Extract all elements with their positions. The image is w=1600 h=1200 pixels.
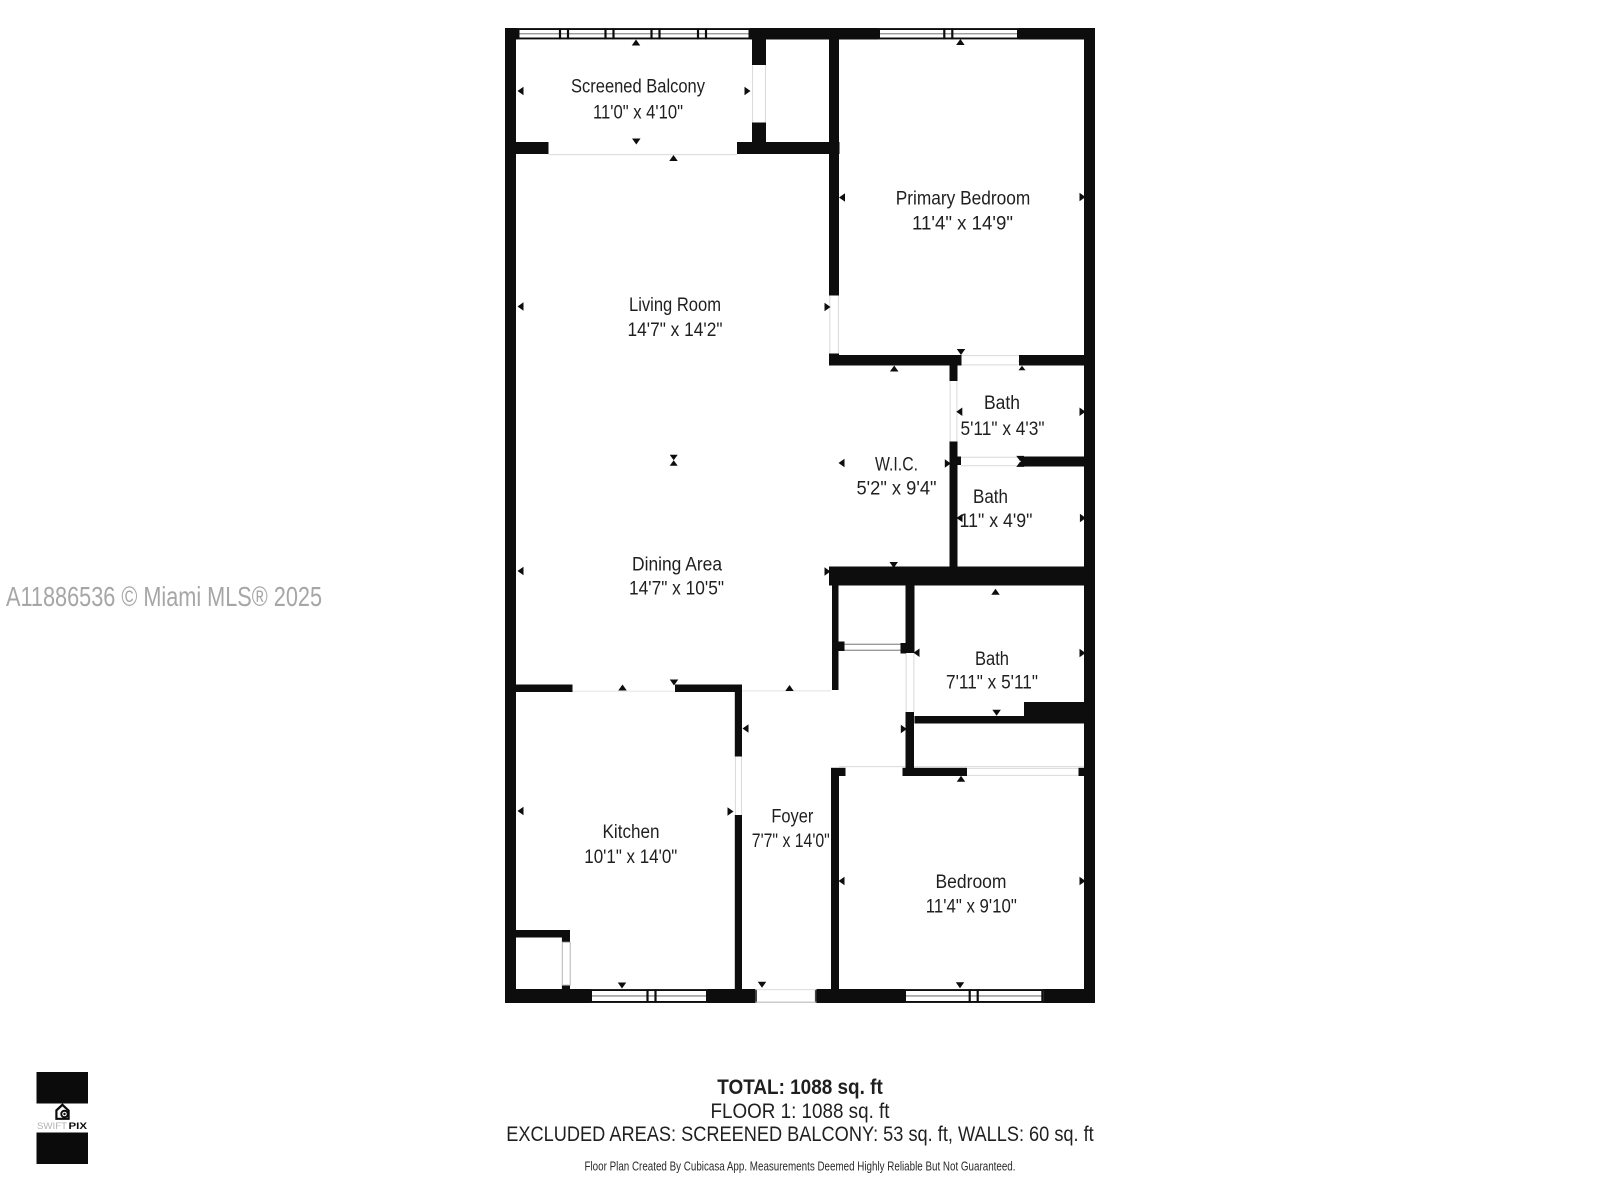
svg-text:W.I.C.: W.I.C. xyxy=(875,455,918,476)
svg-text:Kitchen: Kitchen xyxy=(603,822,660,843)
svg-text:Foyer: Foyer xyxy=(771,807,814,828)
svg-text:Dining Area: Dining Area xyxy=(632,555,722,576)
svg-text:PIX: PIX xyxy=(69,1121,88,1132)
svg-text:14'7" x 10'5": 14'7" x 10'5" xyxy=(629,579,724,600)
svg-text:5'2" x 9'4": 5'2" x 9'4" xyxy=(857,479,937,500)
svg-text:EXCLUDED AREAS: SCREENED BALCO: EXCLUDED AREAS: SCREENED BALCONY: 53 sq.… xyxy=(506,1123,1094,1146)
svg-text:Bath: Bath xyxy=(973,487,1008,508)
svg-text:Bath: Bath xyxy=(984,393,1020,414)
svg-text:11" x 4'9": 11" x 4'9" xyxy=(960,511,1033,532)
svg-text:Primary Bedroom: Primary Bedroom xyxy=(896,189,1031,210)
svg-text:11'0" x 4'10": 11'0" x 4'10" xyxy=(593,103,683,124)
svg-text:7'7" x 14'0": 7'7" x 14'0" xyxy=(752,831,830,852)
svg-text:Bedroom: Bedroom xyxy=(936,872,1007,893)
svg-text:Bath: Bath xyxy=(975,649,1009,670)
svg-text:14'7" x 14'2": 14'7" x 14'2" xyxy=(628,320,723,341)
svg-text:7'11" x 5'11": 7'11" x 5'11" xyxy=(946,673,1038,694)
svg-text:11'4" x 9'10": 11'4" x 9'10" xyxy=(926,897,1017,918)
svg-text:11'4" x 14'9": 11'4" x 14'9" xyxy=(912,214,1013,235)
svg-text:5'11" x 4'3": 5'11" x 4'3" xyxy=(961,419,1045,440)
svg-text:Floor Plan Created By Cubicasa: Floor Plan Created By Cubicasa App. Meas… xyxy=(585,1159,1016,1174)
svg-text:FLOOR 1: 1088 sq. ft: FLOOR 1: 1088 sq. ft xyxy=(711,1100,890,1123)
svg-text:TOTAL: 1088 sq. ft: TOTAL: 1088 sq. ft xyxy=(717,1076,883,1099)
svg-text:10'1" x 14'0": 10'1" x 14'0" xyxy=(584,847,677,868)
svg-text:A11886536 © Miami MLS® 2025: A11886536 © Miami MLS® 2025 xyxy=(6,581,322,612)
svg-text:SWIFT: SWIFT xyxy=(37,1121,67,1132)
svg-text:Screened Balcony: Screened Balcony xyxy=(571,77,705,98)
svg-text:Living Room: Living Room xyxy=(629,295,721,316)
